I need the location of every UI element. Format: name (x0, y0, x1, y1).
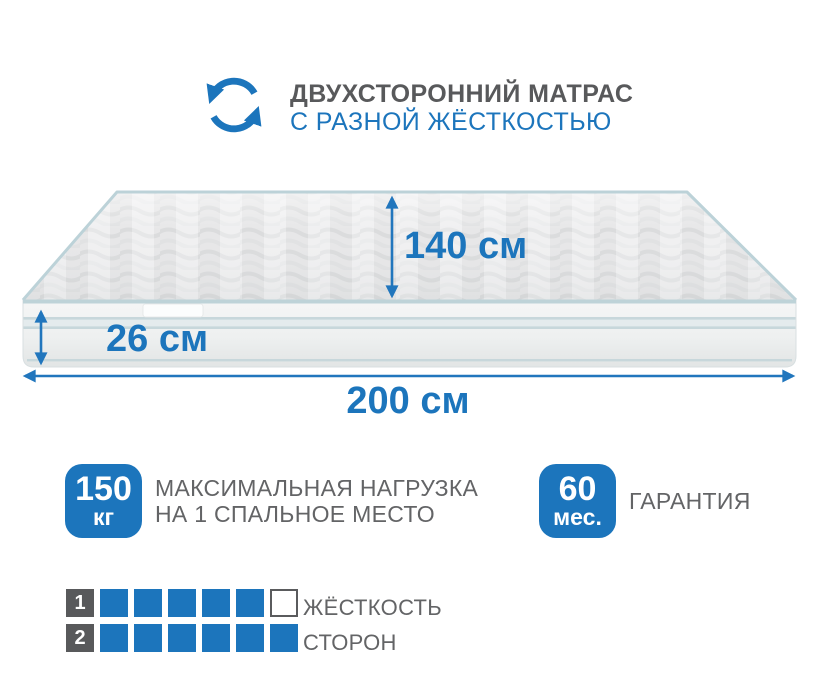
mattress-tag (143, 304, 203, 317)
firmness-cell (134, 624, 162, 652)
warranty-badge: 60 мес. (539, 464, 616, 538)
depth-dimension-label: 26 см (106, 320, 208, 358)
warranty-caption-line1: ГАРАНТИЯ (629, 488, 751, 514)
firmness-cell (168, 624, 196, 652)
page-title: ДВУХСТОРОННИЙ МАТРАС (290, 80, 633, 109)
firmness-grid: 12 (66, 589, 298, 652)
warranty-caption: ГАРАНТИЯ (629, 464, 751, 538)
firmness-row: 1 (66, 589, 298, 617)
firmness-cell (168, 589, 196, 617)
max-load-value: 150 (75, 473, 132, 505)
page-subtitle: С РАЗНОЙ ЖЁСТКОСТЬЮ (290, 108, 612, 137)
firmness-cell (202, 589, 230, 617)
firmness-caption: ЖЁСТКОСТЬ СТОРОН (303, 590, 442, 660)
mattress-infographic: ДВУХСТОРОННИЙ МАТРАС С РАЗНОЙ ЖЁСТКОСТЬЮ (0, 0, 816, 700)
warranty-unit: мес. (553, 505, 602, 529)
firmness-caption-line2: СТОРОН (303, 625, 442, 660)
height-dimension-label: 140 см (404, 227, 527, 265)
warranty-value: 60 (559, 473, 597, 505)
firmness-cell (270, 624, 298, 652)
rotate-arrows-icon (202, 74, 266, 136)
width-dimension-label: 200 см (0, 382, 816, 420)
firmness-cell (100, 589, 128, 617)
firmness-cell (100, 624, 128, 652)
max-load-caption: МАКСИМАЛЬНАЯ НАГРУЗКА НА 1 СПАЛЬНОЕ МЕСТ… (155, 464, 478, 538)
firmness-cell (134, 589, 162, 617)
firmness-row-label: 1 (66, 589, 94, 617)
firmness-row-label: 2 (66, 624, 94, 652)
firmness-cell (202, 624, 230, 652)
firmness-cell (270, 589, 298, 617)
max-load-badge: 150 кг (65, 464, 142, 538)
firmness-caption-line1: ЖЁСТКОСТЬ (303, 590, 442, 625)
max-load-caption-line2: НА 1 СПАЛЬНОЕ МЕСТО (155, 501, 478, 527)
max-load-caption-line1: МАКСИМАЛЬНАЯ НАГРУЗКА (155, 475, 478, 501)
firmness-row: 2 (66, 624, 298, 652)
firmness-cell (236, 589, 264, 617)
firmness-cell (236, 624, 264, 652)
max-load-unit: кг (93, 505, 114, 529)
